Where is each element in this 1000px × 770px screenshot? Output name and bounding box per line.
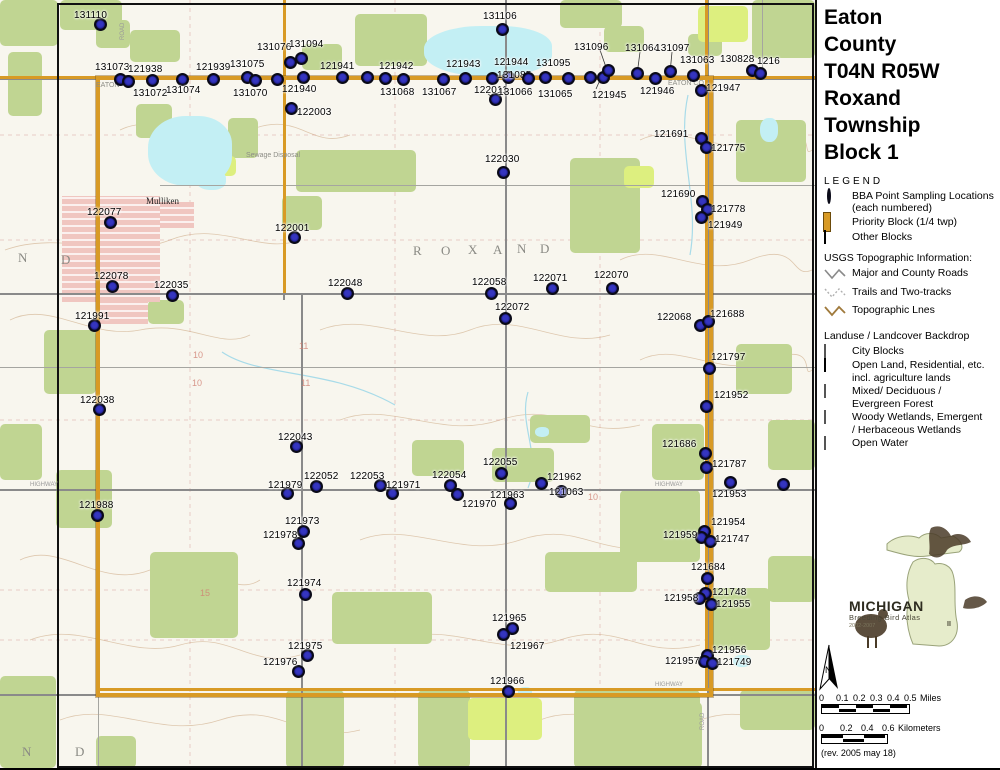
michigan-bba-logo: MICHIGAN Breeding Bird Atlas 2002-2007 I… <box>835 522 995 662</box>
sampling-point-label: 122043 <box>278 432 313 443</box>
legend-label-cont: incl. agriculture lands <box>817 373 1000 385</box>
sampling-point-label: 121938 <box>128 64 163 75</box>
city-blocks-swatch <box>824 346 848 358</box>
map-text: N <box>22 744 32 760</box>
legend-item-open-land: Open Land, Residential, etc. <box>817 358 1000 373</box>
scalebar-unit: Miles <box>920 693 941 703</box>
map-text: D <box>75 744 85 760</box>
sampling-point-label: 121967 <box>510 641 545 652</box>
scalebar-tick: 0.2 <box>853 693 866 703</box>
sampling-point-label: 122072 <box>495 302 530 313</box>
sampling-point-label: 122052 <box>304 471 339 482</box>
scalebar-km: 00.20.40.6Kilometers <box>821 723 999 744</box>
map-text: 10 <box>193 350 203 360</box>
sampling-point-dot <box>649 72 662 85</box>
legend-label: (each numbered) <box>852 202 932 214</box>
sampling-point-dot <box>695 211 708 224</box>
scalebar-miles-bar <box>821 704 910 714</box>
sampling-point-label: 121962 <box>547 472 582 483</box>
bba-map-sheet: MullikenROXANDNDNDEATON COEATONSewage Di… <box>0 0 1000 770</box>
legend-label: Open Land, Residential, etc. <box>852 360 985 372</box>
sampling-point-dot <box>664 65 677 78</box>
sampling-point-label: 121958 <box>664 593 699 604</box>
sampling-point-label: 1216 <box>757 56 780 67</box>
sampling-point-label: 121748 <box>712 587 747 598</box>
scalebar-tick: 0.5 <box>904 693 917 703</box>
sampling-point-dot <box>495 467 508 480</box>
sampling-point-dot <box>777 478 790 491</box>
sampling-point-label: 122038 <box>80 395 115 406</box>
map-text: D <box>540 241 550 257</box>
sampling-point-dot <box>602 64 615 77</box>
sampling-point-label: 131073 <box>95 62 130 73</box>
map-text: O <box>441 243 451 259</box>
forest-swatch <box>824 386 848 398</box>
sampling-point-label: 131097 <box>655 43 690 54</box>
priority-block-swatch <box>824 217 848 229</box>
sampling-point-label: 121941 <box>320 61 355 72</box>
sampling-point-label: 122001 <box>275 223 310 234</box>
sampling-point-label: 121966 <box>490 676 525 687</box>
sampling-point-label: 122054 <box>432 470 467 481</box>
map-text: ROAD <box>700 713 706 730</box>
sampling-point-dot <box>703 362 716 375</box>
sampling-point-label: 121787 <box>712 459 747 470</box>
map-text: Mulliken <box>146 196 179 206</box>
map-text: R <box>413 243 423 259</box>
landuse-heading: Landuse / Landcover Backdrop <box>817 322 1000 344</box>
map-text: N <box>517 241 527 257</box>
sampling-point-label: 121973 <box>285 516 320 527</box>
sampling-point-label: 121953 <box>712 489 747 500</box>
sampling-point-dot <box>724 476 737 489</box>
sampling-point-label: 121979 <box>268 480 303 491</box>
trail-line-icon <box>824 287 848 303</box>
bba-point-icon <box>824 191 848 203</box>
legend-label-cont: Evergreen Forest <box>817 399 1000 411</box>
sampling-point-label: 121947 <box>706 83 741 94</box>
legend-item-topo-lines: Topographic Lnes <box>817 303 1000 322</box>
sampling-point-dot <box>562 72 575 85</box>
north-arrow: N <box>814 643 844 693</box>
scalebar-miles: 00.10.20.30.40.5Miles <box>821 693 999 714</box>
legend-label-cont: / Herbaceous Wetlands <box>817 425 1000 437</box>
sampling-point-label: 122048 <box>328 278 363 289</box>
sampling-point-label: 122078 <box>94 271 129 282</box>
sampling-point-label: 122030 <box>485 154 520 165</box>
scalebar-tick: 0.1 <box>836 693 849 703</box>
sampling-point-label: 121988 <box>79 500 114 511</box>
usgs-heading: USGS Topographic Information: <box>817 244 1000 266</box>
sampling-point-label: 121949 <box>708 220 743 231</box>
sampling-point-dot <box>497 628 510 641</box>
logo-numeral: II <box>947 621 951 628</box>
scalebar-unit: Kilometers <box>898 723 941 733</box>
sampling-point-label: 121063 <box>549 487 584 498</box>
sampling-point-dot <box>379 72 392 85</box>
map-text: 11 <box>301 378 310 388</box>
sampling-point-dot <box>397 73 410 86</box>
north-label-glyph: N <box>825 665 832 675</box>
map-text: N <box>18 250 28 266</box>
sampling-point-label: 130828 <box>720 54 755 65</box>
sampling-point-label: 121952 <box>714 390 749 401</box>
sampling-point-label: 121976 <box>263 657 298 668</box>
sampling-point-label: 121946 <box>640 86 675 97</box>
sampling-point-label: 131094 <box>289 39 324 50</box>
sampling-point-label: 121940 <box>282 84 317 95</box>
legend-item-roads: Major and County Roads <box>817 266 1000 285</box>
sampling-point-label: 131075 <box>230 59 265 70</box>
scalebar-tick: 0.6 <box>882 723 895 733</box>
sampling-point-label: 122058 <box>472 277 507 288</box>
sampling-point-label: 122071 <box>533 273 568 284</box>
sampling-point-dot <box>249 74 262 87</box>
sampling-point-dot <box>485 287 498 300</box>
legend-item-city-blocks: City Blocks <box>817 344 1000 359</box>
map-text: X <box>468 242 478 258</box>
title-line: County <box>824 31 1000 58</box>
sampling-point-dot <box>496 23 509 36</box>
sampling-point-label: 131067 <box>422 87 457 98</box>
map-text: HIGHWAY <box>655 482 683 488</box>
road-line-icon <box>824 268 848 284</box>
sampling-point-dot <box>606 282 619 295</box>
title-line: Eaton <box>824 4 1000 31</box>
sampling-point-label: 121991 <box>75 311 110 322</box>
scalebar-tick: 0.4 <box>887 693 900 703</box>
map-text: ROAD <box>120 23 126 40</box>
revision-date: (rev. 2005 may 18) <box>821 748 896 758</box>
map-text: HIGHWAY <box>655 682 683 688</box>
scalebar-tick: 0 <box>819 723 824 733</box>
sampling-point-dot <box>299 588 312 601</box>
sampling-point-label: 121975 <box>288 641 323 652</box>
sampling-point-dot <box>754 67 767 80</box>
map-text: D <box>61 252 71 268</box>
sampling-point-label: 121778 <box>711 204 746 215</box>
logo-years: 2002-2007 <box>849 623 875 629</box>
legend-item-wetlands: Woody Wetlands, Emergent <box>817 410 1000 425</box>
scalebar-tick: 0 <box>819 693 824 703</box>
legend-item-bba-points: BBA Point Sampling Locations (each numbe… <box>817 189 1000 215</box>
open-land-swatch <box>824 360 848 372</box>
sampling-point-label: 131065 <box>538 89 573 100</box>
sampling-point-label: 131070 <box>233 88 268 99</box>
sampling-point-label: 121955 <box>716 599 751 610</box>
legend-label: City Blocks <box>852 346 904 358</box>
legend-label: Mixed/ Deciduous / <box>852 386 941 398</box>
sampling-point-dot <box>631 67 644 80</box>
sampling-point-label: 121957 <box>665 656 700 667</box>
sampling-point-dot <box>701 572 714 585</box>
map-text: A <box>493 242 503 258</box>
legend-item-forest: Mixed/ Deciduous / <box>817 384 1000 399</box>
sampling-point-label: 121959 <box>663 530 698 541</box>
sampling-point-dot <box>522 72 535 85</box>
sampling-point-dot <box>361 71 374 84</box>
scalebar-km-ticks: 00.20.40.6Kilometers <box>821 723 999 734</box>
sampling-point-label: 121690 <box>661 189 696 200</box>
map-text: 11 <box>299 341 308 351</box>
legend-label: Trails and Two-tracks <box>852 287 951 299</box>
title-line: Block 1 <box>824 139 1000 166</box>
sampling-point-label: 131106 <box>483 11 517 22</box>
sampling-point-label: 121684 <box>691 562 726 573</box>
sampling-point-dot <box>497 166 510 179</box>
legend-item-priority-block: Priority Block (1/4 twp) <box>817 215 1000 230</box>
topographic-map: MullikenROXANDNDNDEATON COEATONSewage Di… <box>0 0 815 768</box>
sampling-point-dot <box>297 71 310 84</box>
legend-label: BBA Point Sampling Locations <box>852 190 994 202</box>
sampling-point-dot <box>499 312 512 325</box>
sampling-point-dot <box>295 52 308 65</box>
sampling-point-label: 121978 <box>263 530 298 541</box>
wetland-swatch <box>824 412 848 424</box>
sampling-point-label: 121939 <box>196 62 231 73</box>
map-text: 15 <box>200 588 210 598</box>
sampling-point-label: 131076 <box>257 42 292 53</box>
sampling-point-label: 121797 <box>711 352 746 363</box>
sampling-point-label: 131066 <box>498 87 533 98</box>
sampling-point-label: 121970 <box>462 499 497 510</box>
legend-label: Open Water <box>852 438 908 450</box>
sampling-point-label: 121749 <box>717 657 752 668</box>
sampling-point-dot <box>146 74 159 87</box>
title-line: T04N R05W <box>824 58 1000 85</box>
sampling-point-label: 122053 <box>350 471 385 482</box>
legend-label: Woody Wetlands, Emergent <box>852 412 982 424</box>
other-blocks-swatch <box>824 232 848 244</box>
sampling-point-label: 121775 <box>711 143 746 154</box>
sampling-point-label: 131068 <box>380 87 415 98</box>
map-text: 10 <box>192 378 202 388</box>
sampling-point-dot <box>437 73 450 86</box>
title-line: Township <box>824 112 1000 139</box>
sampling-point-dot <box>459 72 472 85</box>
water-swatch <box>824 438 848 450</box>
sampling-point-label: 122003 <box>297 107 332 118</box>
sampling-point-label: 131074 <box>166 85 201 96</box>
sampling-point-label: 121954 <box>711 517 746 528</box>
sampling-point-label: 121965 <box>492 613 527 624</box>
sampling-point-label: 131095 <box>536 58 571 69</box>
sampling-point-label: 131072 <box>133 88 168 99</box>
sampling-point-dot <box>700 400 713 413</box>
legend-label: Other Blocks <box>852 232 912 244</box>
sampling-point-label: 122068 <box>657 312 692 323</box>
sampling-point-dot <box>336 71 349 84</box>
sampling-point-dot <box>207 73 220 86</box>
sampling-point-label: 131063 <box>680 55 715 66</box>
sampling-point-dot <box>699 447 712 460</box>
sampling-point-label: 121747 <box>715 534 750 545</box>
sampling-point-label: 121974 <box>287 578 322 589</box>
map-title: Eaton County T04N R05W Roxand Township B… <box>817 0 1000 166</box>
logo-title: MICHIGAN <box>849 598 924 614</box>
sampling-point-label: 122035 <box>154 280 189 291</box>
legend-label: Topographic Lnes <box>852 305 935 317</box>
sampling-point-label: 121942 <box>379 61 414 72</box>
legend-heading: LEGEND <box>817 166 1000 189</box>
map-text: HIGHWAY <box>30 482 58 488</box>
scalebar-tick: 0.3 <box>870 693 883 703</box>
legend-label: Priority Block (1/4 twp) <box>852 217 957 229</box>
sampling-point-label: 121971 <box>386 480 421 491</box>
sampling-point-label: 121943 <box>446 59 481 70</box>
topo-line-icon <box>824 305 848 321</box>
sampling-point-label: 131096 <box>574 42 609 53</box>
scalebar-km-bar <box>821 734 888 744</box>
sampling-point-dot <box>584 71 597 84</box>
sampling-point-dot <box>122 75 135 88</box>
sampling-point-dot <box>539 71 552 84</box>
sampling-point-label: 121686 <box>662 439 697 450</box>
label-leader-lines <box>0 0 815 768</box>
sampling-point-label: 122055 <box>483 457 518 468</box>
scalebar-tick: 0.4 <box>861 723 874 733</box>
sampling-point-label: 121688 <box>710 309 745 320</box>
legend-item-trails: Trails and Two-tracks <box>817 285 1000 304</box>
sampling-point-dot <box>271 73 284 86</box>
sampling-point-label: 121945 <box>592 90 627 101</box>
legend-item-other-blocks: Other Blocks <box>817 230 1000 245</box>
sampling-point-label: 131110 <box>74 10 107 21</box>
sampling-point-label: 122077 <box>87 207 122 218</box>
sampling-point-label: 121956 <box>712 645 747 656</box>
legend-label: Major and County Roads <box>852 268 968 280</box>
map-text: Sewage Disposal <box>246 152 300 159</box>
sampling-point-label: 121691 <box>654 129 689 140</box>
scalebar-tick: 0.2 <box>840 723 853 733</box>
scalebar-miles-ticks: 00.10.20.30.40.5Miles <box>821 693 999 704</box>
sampling-point-label: 122070 <box>594 270 629 281</box>
sampling-point-label: 121944 <box>494 57 529 68</box>
sampling-point-dot <box>504 497 517 510</box>
legend-item-open-water: Open Water <box>817 436 1000 451</box>
title-line: Roxand <box>824 85 1000 112</box>
legend-panel: Eaton County T04N R05W Roxand Township B… <box>815 0 1000 768</box>
logo-subtitle: Breeding Bird Atlas <box>849 613 920 622</box>
map-text: 10 <box>588 492 598 502</box>
sampling-point-dot <box>687 69 700 82</box>
michigan-outline-graphic <box>835 522 995 662</box>
